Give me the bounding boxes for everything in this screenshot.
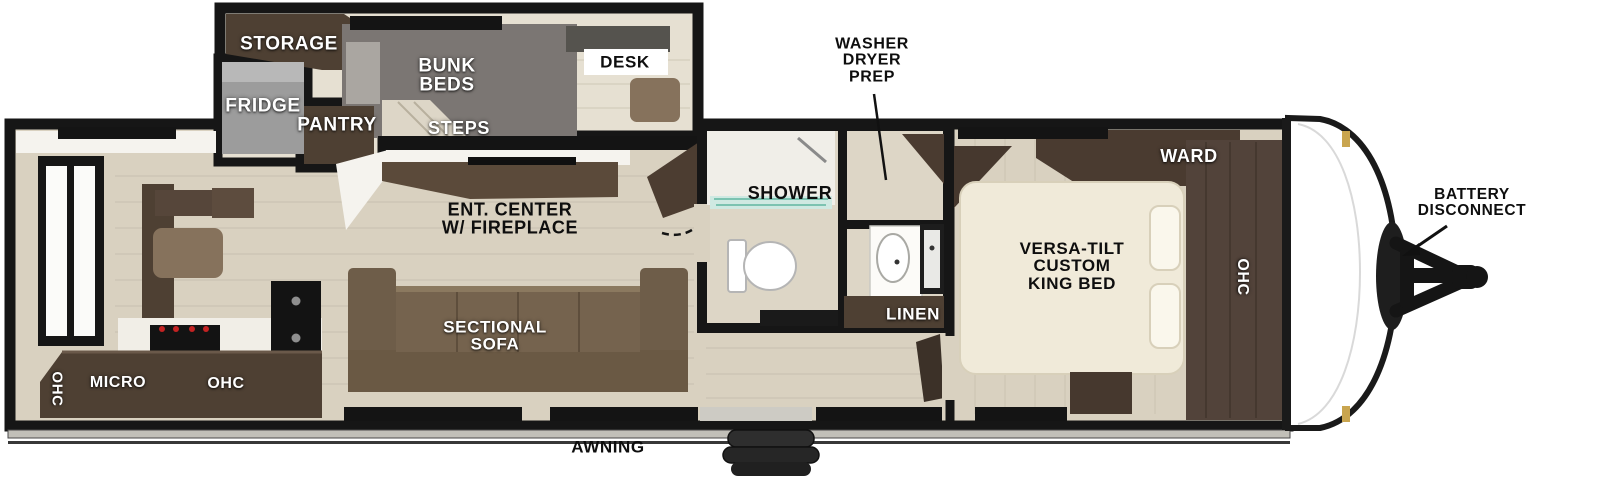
- bath-counter: [760, 310, 838, 326]
- bed-pillow: [1150, 206, 1180, 270]
- hitch-a-frame: [1376, 222, 1488, 330]
- kitchen-hanging-shelf: [212, 188, 254, 218]
- kitchen-shelf: [155, 190, 219, 216]
- window-bottom: [550, 407, 698, 421]
- desk-label-band: [584, 49, 668, 75]
- ohc-cabinet-bedroom: [1186, 140, 1286, 420]
- kitchen-drawers: [271, 281, 321, 358]
- shower-glass: [710, 196, 832, 209]
- kitchen-chair: [153, 228, 223, 278]
- ent-center-wall: [378, 136, 704, 150]
- entry-door-threshold: [700, 407, 812, 421]
- drawer-knob: [292, 297, 301, 306]
- sink-basin: [877, 234, 909, 282]
- kitchen-lower-counter: [40, 352, 322, 418]
- floorplan-drawing: [0, 0, 1600, 483]
- bedroom-window-bottom: [975, 407, 1067, 421]
- mirror-glass: [924, 230, 940, 288]
- fireplace-insert: [468, 157, 576, 165]
- sofa-back: [348, 350, 688, 392]
- fridge-top: [222, 62, 304, 82]
- bedroom-window-top: [958, 127, 1108, 139]
- drawer-knob: [292, 334, 301, 343]
- mirror-detail: [930, 246, 935, 251]
- pantry-box: [304, 106, 374, 164]
- bed-bench: [1070, 372, 1132, 414]
- cap-marker-light: [1342, 131, 1350, 147]
- awning-rail: [8, 430, 1290, 438]
- bathroom-door-opening: [694, 204, 710, 262]
- rear-top-window: [58, 127, 176, 139]
- linen-cabinet: [844, 296, 944, 328]
- entry-steps: [723, 430, 819, 476]
- cap-marker-light: [1342, 406, 1350, 422]
- awning-edge-line: [8, 441, 1290, 444]
- toilet-bowl: [744, 242, 796, 290]
- floorplan-canvas: STORAGE FRIDGE PANTRY BUNK BEDS STEPS DE…: [0, 0, 1600, 483]
- bunk-ladder: [346, 42, 380, 104]
- rear-window-pane: [46, 166, 67, 336]
- bunk-window: [350, 16, 502, 30]
- sink-drain: [895, 260, 900, 265]
- desk-chair: [630, 78, 680, 122]
- window-bottom: [344, 407, 522, 421]
- desk-surface: [566, 26, 670, 52]
- rear-window-pane: [74, 166, 95, 336]
- shower-stall: [707, 131, 835, 205]
- bed-pillow: [1150, 284, 1180, 348]
- window-bottom: [816, 407, 942, 421]
- bedroom-door-opening: [942, 336, 957, 400]
